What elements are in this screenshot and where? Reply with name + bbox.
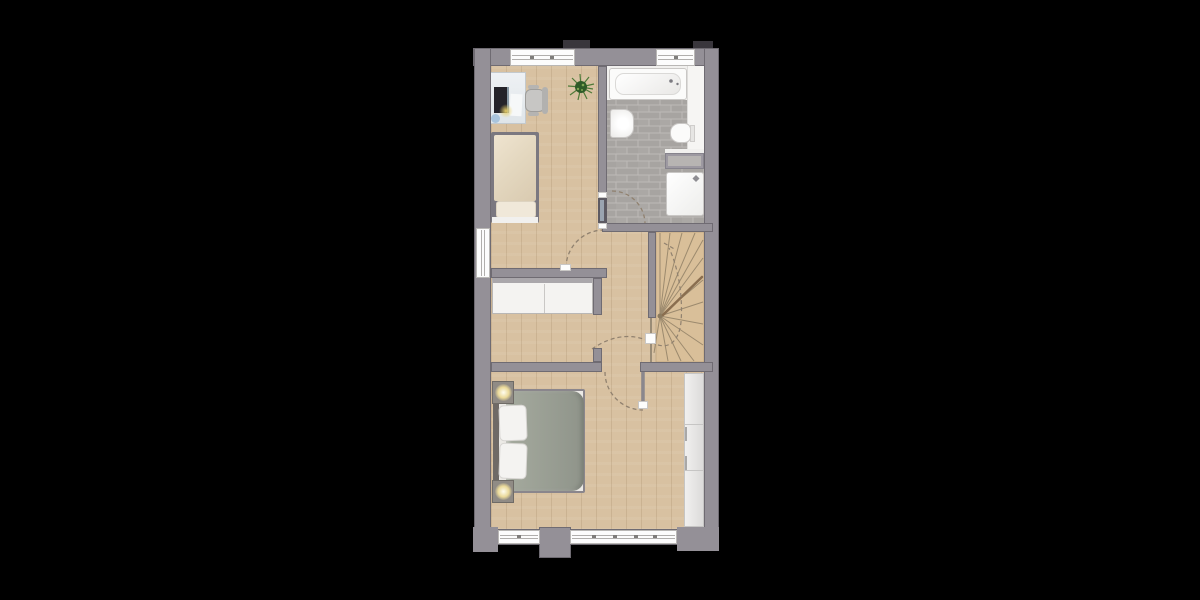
wall-landing-master [491, 362, 602, 372]
bathroom-door-glass [600, 200, 604, 221]
window-south-long [570, 530, 677, 544]
small-bedroom-door-stop [560, 264, 571, 271]
bathtub-faucet [669, 79, 679, 85]
chimney-pier-south [539, 527, 571, 558]
window-west [476, 228, 490, 278]
bathroom-door-jamb-top [598, 192, 607, 198]
floor-plan [0, 0, 1200, 600]
window-top-right [656, 49, 695, 66]
screenshot-root: { "scene": { "type": "floor-plan-renderi… [0, 0, 1200, 600]
bathroom-door-arc [612, 191, 645, 224]
stair-walk-line [592, 243, 682, 349]
corner-block-southeast [677, 527, 719, 551]
window-south-small [498, 530, 540, 544]
wall-sideboard-stub [593, 278, 602, 315]
wall-bedroom-bathroom [598, 66, 607, 193]
master-door-stop [638, 401, 648, 409]
wall-east [704, 48, 719, 545]
wall-stair-west [648, 232, 656, 318]
potted-plant [568, 74, 594, 100]
wall-west [474, 48, 491, 545]
window-top-left [510, 49, 575, 66]
wall-landing-master-stub [593, 348, 602, 362]
wall-bedroom-landing [491, 268, 607, 278]
small-bedroom-door-arc [566, 230, 604, 268]
stair-newel-marker [645, 333, 656, 344]
corner-block-southwest [473, 527, 498, 552]
wall-stair-south [640, 362, 713, 372]
wall-bathroom-south [602, 223, 713, 232]
bathroom-door-jamb-bottom [598, 223, 607, 229]
shower-drain [692, 175, 699, 182]
